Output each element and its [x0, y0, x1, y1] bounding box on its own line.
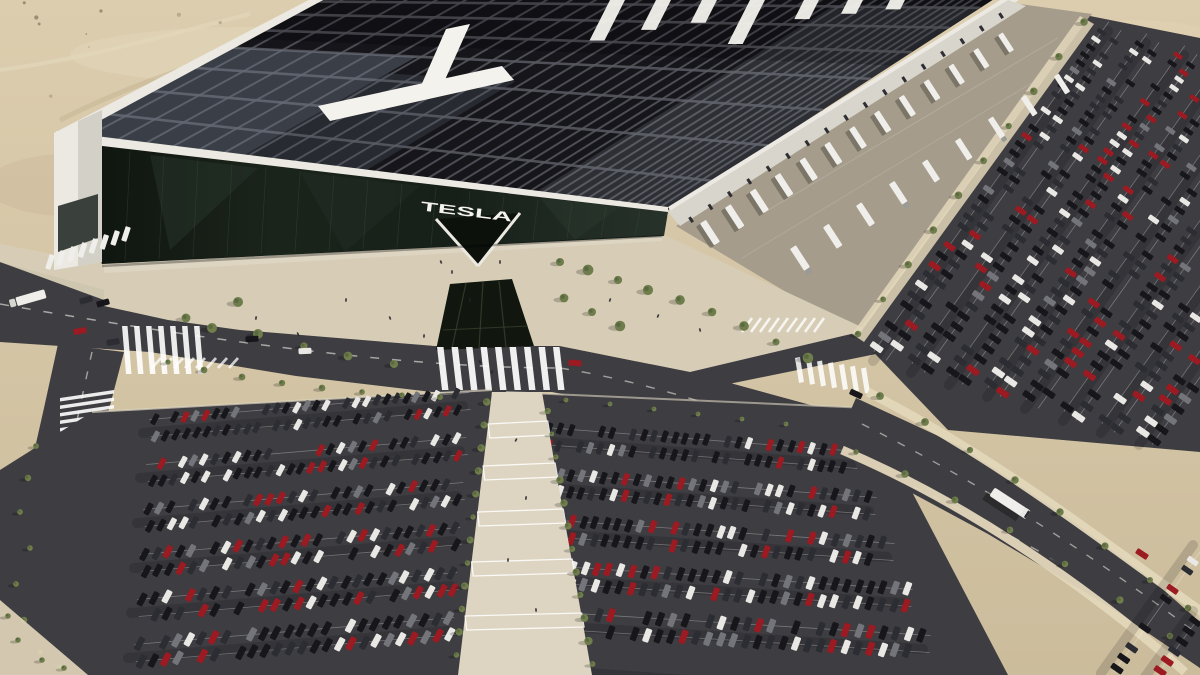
shrub-core — [473, 492, 476, 495]
shrub-core — [902, 471, 905, 474]
shrub-core — [391, 361, 395, 365]
shrub-core — [557, 477, 560, 480]
shrub-core — [608, 402, 610, 404]
shrub-core — [557, 259, 561, 263]
shrub-core — [166, 360, 168, 362]
shrub-core — [234, 298, 239, 303]
pedestrian — [345, 298, 347, 302]
shrub-core — [561, 500, 564, 503]
car — [298, 348, 311, 355]
desert-scrub — [99, 9, 102, 12]
shrub-core — [1102, 543, 1105, 546]
shrub-core — [981, 158, 984, 161]
shrub-core — [877, 393, 881, 397]
shrub-core — [201, 368, 204, 371]
shrub-core — [652, 407, 654, 409]
shrub-core — [1031, 89, 1034, 92]
shrub-core — [208, 325, 212, 329]
shrub-core — [696, 412, 698, 414]
shrub-core — [462, 583, 465, 586]
desert-scrub — [219, 21, 222, 24]
shrub-core — [1012, 477, 1015, 480]
shrub-core — [574, 569, 577, 572]
shrub-core — [545, 409, 548, 412]
shrub-core — [28, 546, 31, 549]
shrub-core — [773, 340, 776, 343]
shrub-core — [585, 638, 589, 642]
shrub-core — [1007, 528, 1010, 531]
pedestrian — [507, 558, 509, 562]
pedestrian — [451, 270, 453, 273]
shrub-core — [438, 395, 441, 398]
shrub-core — [1081, 19, 1084, 22]
desert-scrub — [85, 33, 87, 35]
scene-canvas: TESLA — [0, 0, 1200, 675]
shrub-core — [345, 353, 349, 357]
shrub-core — [280, 381, 283, 384]
shrub-core — [615, 277, 619, 281]
shrub-core — [465, 561, 467, 563]
shrub-core — [856, 332, 859, 335]
shrub-core — [1117, 597, 1120, 600]
shrub-core — [26, 476, 29, 479]
shrub-core — [468, 538, 471, 541]
shrub-core — [319, 386, 322, 389]
shrub-core — [484, 399, 487, 402]
shrub-core — [550, 432, 552, 434]
shrub-core — [804, 354, 809, 359]
car — [245, 336, 258, 343]
shrub-core — [709, 309, 713, 313]
shrub-core — [854, 450, 856, 452]
shrub-core — [1148, 578, 1151, 581]
shrub-core — [16, 638, 19, 641]
shrub-core — [478, 445, 481, 448]
shrub-core — [968, 448, 971, 451]
shrub-core — [564, 398, 566, 400]
shrub-core — [456, 629, 459, 632]
shrub-core — [400, 393, 402, 395]
shrub-core — [6, 614, 9, 617]
shrub-core — [561, 295, 565, 299]
desert-scrub — [38, 23, 41, 26]
shrub-core — [905, 262, 908, 265]
shrub-core — [931, 227, 934, 230]
shrub-core — [454, 653, 456, 655]
shrub-core — [1006, 124, 1009, 127]
shrub-core — [476, 468, 479, 471]
shrub-core — [239, 375, 242, 378]
shrub-core — [18, 510, 21, 513]
shrub-core — [360, 390, 363, 393]
shrub-core — [881, 297, 884, 300]
shrub-core — [183, 315, 187, 319]
desert-scrub — [23, 1, 26, 4]
shrub-core — [581, 615, 585, 619]
desert-scrub — [34, 15, 38, 19]
shrub-core — [471, 515, 473, 517]
gigafactory-aerial-rendering: TESLA — [0, 0, 1200, 675]
shrub-core — [34, 444, 37, 447]
shrub-core — [616, 322, 621, 327]
shrub-core — [584, 266, 589, 271]
shrub-core — [644, 286, 649, 291]
shrub-core — [62, 666, 65, 669]
shrub-core — [570, 547, 573, 550]
shrub-core — [740, 417, 742, 419]
pedestrian — [499, 260, 501, 263]
shrub-core — [14, 582, 17, 585]
shrub-core — [460, 607, 463, 610]
shrub-core — [481, 423, 484, 426]
shrub-core — [1057, 509, 1060, 512]
shrub-core — [301, 343, 304, 346]
shrub-core — [952, 498, 955, 501]
shrub-core — [1185, 606, 1188, 609]
shrub-core — [1056, 54, 1059, 57]
shrub-core — [1063, 562, 1066, 565]
desert-scrub — [88, 46, 90, 48]
desert-scrub — [177, 13, 181, 17]
shrub-core — [676, 297, 680, 301]
shrub-core — [740, 323, 744, 327]
shrub-core — [566, 524, 569, 527]
shrub-core — [590, 662, 593, 665]
shrub-core — [956, 193, 959, 196]
shrub-core — [784, 422, 786, 424]
desert-scrub — [49, 94, 52, 97]
shrub-core — [554, 455, 556, 457]
shrub-core — [578, 593, 581, 596]
shrub-core — [589, 309, 593, 313]
shrub-core — [254, 331, 258, 335]
pedestrian — [423, 334, 425, 338]
shrub-core — [922, 419, 926, 423]
shrub-core — [40, 658, 43, 661]
